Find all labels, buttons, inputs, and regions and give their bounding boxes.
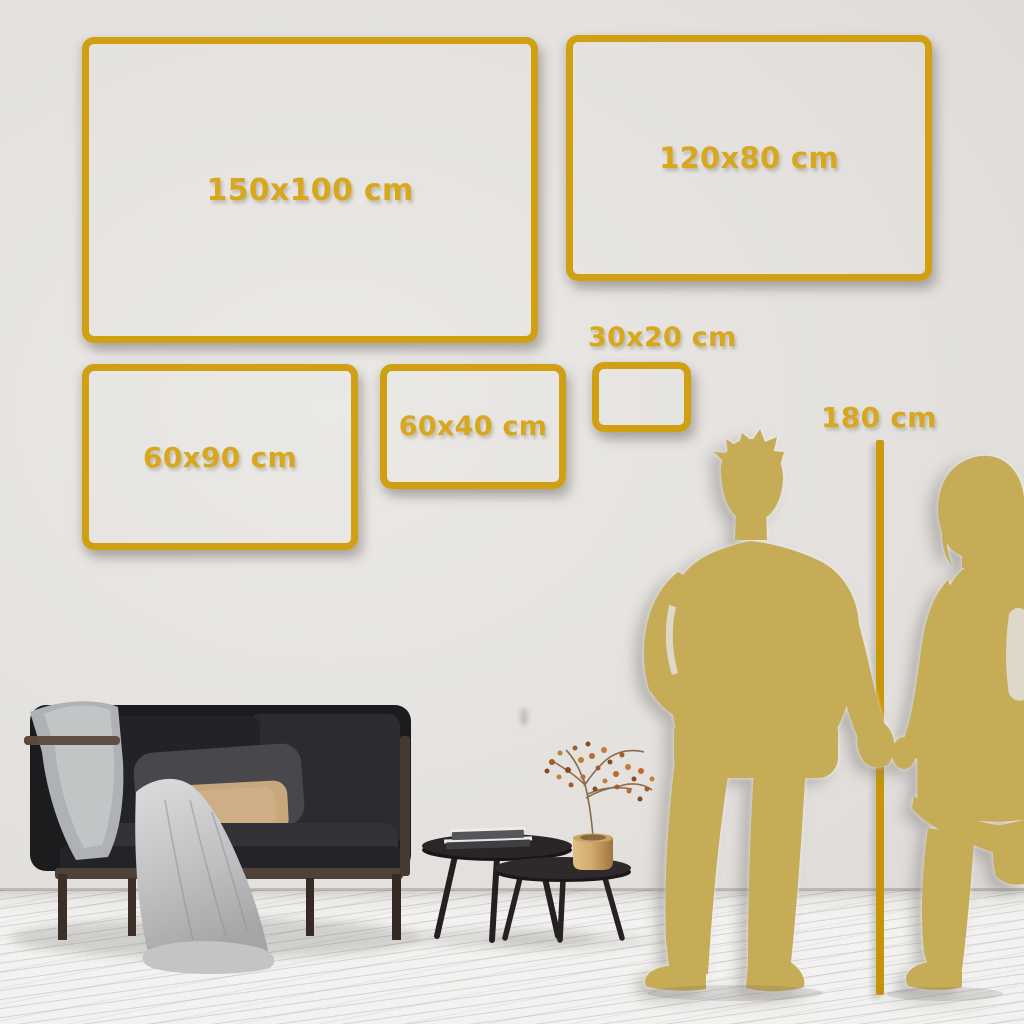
size-frame-60x90: 60x90 cm — [82, 364, 358, 550]
wall-smudge — [520, 708, 528, 726]
size-frame-label: 150x100 cm — [206, 173, 413, 208]
floor — [0, 890, 1024, 1024]
size-frame-60x40: 60x40 cm — [380, 364, 566, 489]
sofa-pillow-tan — [167, 780, 290, 839]
woman-hand — [892, 737, 916, 769]
man-head — [721, 439, 783, 522]
height-ruler-line — [876, 440, 884, 995]
size-frame-120x80: 120x80 cm — [566, 35, 932, 281]
height-ruler-label: 180 cm — [821, 401, 937, 434]
woman-hair — [938, 456, 1024, 648]
sofa-pillow-dark — [132, 742, 305, 836]
woman-arm — [897, 580, 955, 759]
man-torso — [667, 541, 859, 730]
size-frame-label: 30x20 cm — [588, 322, 737, 353]
woman-head — [945, 472, 1007, 548]
size-frame-label: 60x90 cm — [143, 441, 297, 474]
size-frame-label: 120x80 cm — [659, 141, 839, 175]
woman-calf — [993, 820, 1024, 885]
size-frame-label: 60x40 cm — [399, 411, 548, 442]
woman-dress — [917, 564, 1024, 822]
size-frame-30x20 — [592, 362, 691, 432]
woman-skirt-hem — [912, 796, 1024, 862]
size-frame-150x100: 150x100 cm — [82, 37, 538, 343]
man-hair — [714, 429, 784, 466]
books — [444, 826, 533, 849]
size-guide-scene: 150x100 cm 120x80 cm 60x90 cm 60x40 cm 3… — [0, 0, 1024, 1024]
plant-berries — [545, 742, 655, 802]
plant — [545, 742, 655, 871]
woman-hair-wisp — [942, 508, 952, 566]
wall-floor-junction — [0, 888, 1024, 891]
vase — [573, 834, 613, 871]
